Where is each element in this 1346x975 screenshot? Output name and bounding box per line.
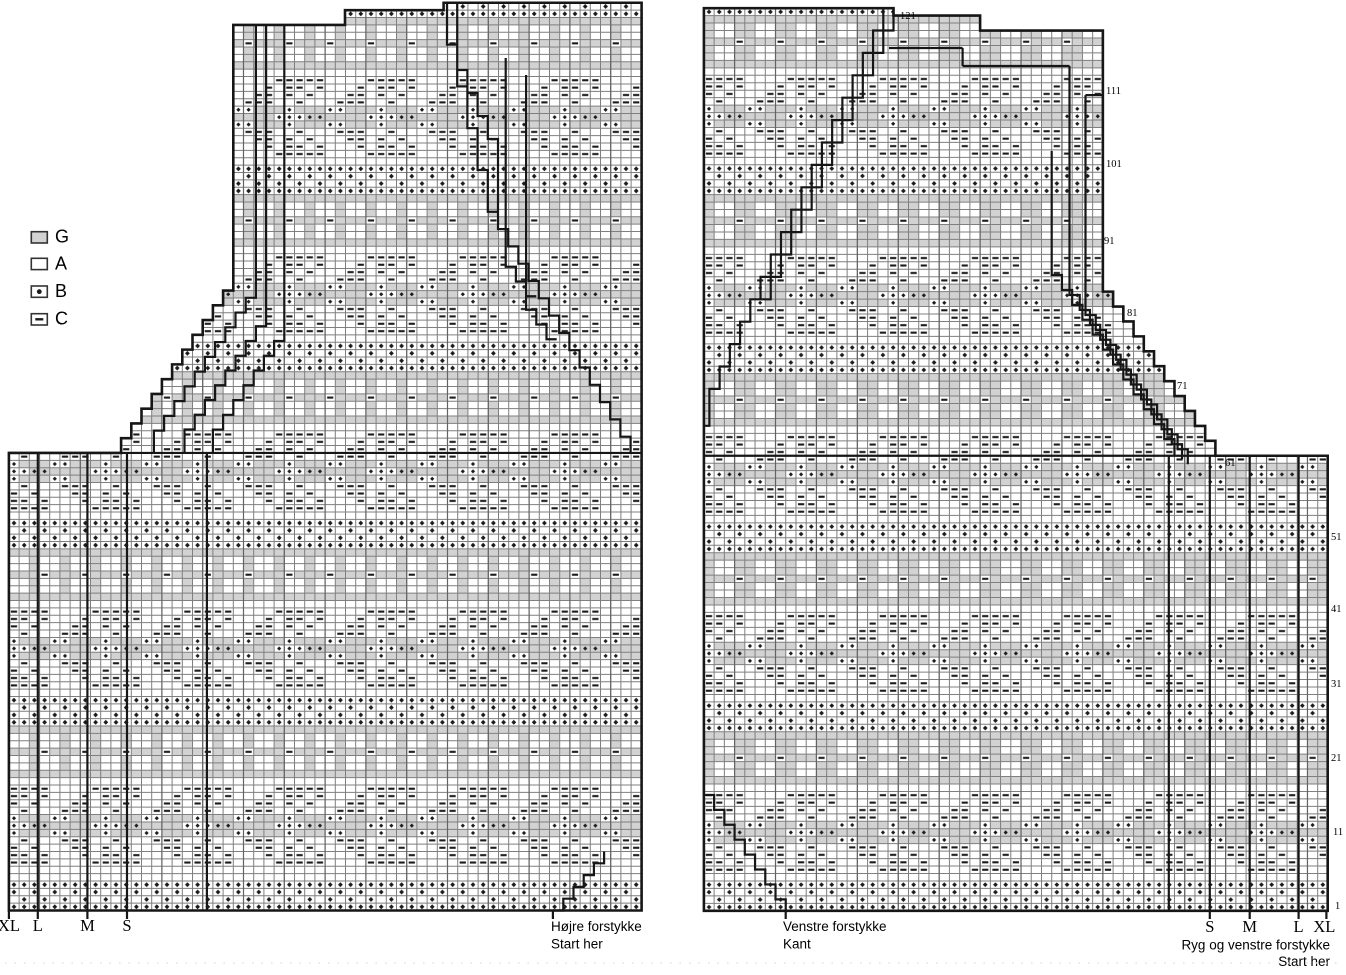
svg-text:1: 1 [1335,901,1340,912]
svg-text:11: 11 [1333,827,1343,838]
svg-text:S: S [122,916,131,935]
svg-text:XL: XL [1313,917,1335,936]
svg-text:61: 61 [1225,458,1236,469]
svg-text:Venstre forstykke: Venstre forstykke [783,919,887,934]
svg-text:Kant: Kant [783,937,811,952]
svg-text:A: A [55,253,67,273]
svg-text:B: B [55,281,67,301]
svg-text:M: M [80,916,95,935]
svg-text:Højre forstykke: Højre forstykke [551,919,642,934]
svg-text:81: 81 [1127,308,1138,319]
svg-text:31: 31 [1331,679,1342,690]
svg-text:51: 51 [1331,532,1342,543]
svg-text:L: L [1294,917,1304,936]
svg-text:M: M [1242,917,1257,936]
svg-text:S: S [1205,917,1214,936]
svg-text:21: 21 [1331,753,1342,764]
svg-text:Ryg og venstre forstykke: Ryg og venstre forstykke [1181,938,1330,953]
svg-text:L: L [33,916,43,935]
svg-text:G: G [55,227,69,247]
svg-text:111: 111 [1106,86,1121,97]
svg-text:91: 91 [1104,236,1115,247]
svg-text:C: C [55,309,68,329]
svg-text:XL: XL [0,916,20,935]
svg-text:101: 101 [1106,159,1122,170]
svg-text:Start her: Start her [1278,954,1330,969]
svg-text:71: 71 [1177,381,1188,392]
svg-text:41: 41 [1331,604,1342,615]
svg-text:121: 121 [900,11,916,22]
svg-text:Start her: Start her [551,937,603,952]
